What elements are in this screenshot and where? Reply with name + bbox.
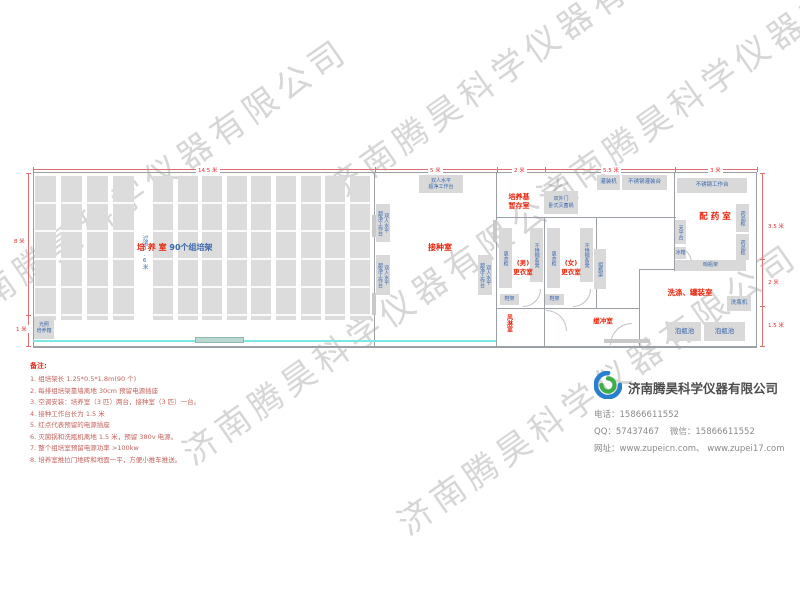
- soaking-pool-2: 泡瓶池: [704, 322, 745, 341]
- clean-bench-top: 双人水平 超净工作台: [419, 175, 463, 193]
- web-value: www.zupeicn.com、 www.zupei17.com: [620, 444, 785, 454]
- dim-tick: [545, 167, 546, 172]
- company-qq-line: QQ：57437467 微信：15866611552: [594, 425, 784, 437]
- culture-room-rack-count: 90个组培架: [169, 243, 212, 252]
- bottle-washer: 洗瓶机: [727, 296, 751, 311]
- medicine-cabinet-1: 药品柜: [736, 204, 749, 232]
- buffer-room-label: 缓冲室: [585, 316, 621, 326]
- phone-value: 15866611552: [620, 410, 680, 420]
- clean-bench-left-2: 双人水平 超净工作台: [376, 255, 390, 295]
- note-item: 1. 组培架长 1.25*0.5*1.8m(90 个): [30, 374, 330, 386]
- door-bar: [493, 220, 497, 242]
- sterilizer: 双外门 卧式灭菌锅: [544, 191, 578, 214]
- clean-bench-left-1: 双人水平 超净工作台: [376, 204, 390, 242]
- culture-rack: [251, 176, 271, 320]
- dim-tick: [26, 315, 31, 316]
- note-item: 5. 红点代表预留的电源插座: [30, 420, 330, 432]
- company-phone-line: 电话：15866611552: [594, 408, 784, 420]
- wall: [33, 172, 757, 173]
- door-arc: [610, 323, 632, 345]
- dim-label-top-3: 5.5 米: [601, 166, 621, 174]
- shoe-rack-women: 鞋架: [545, 294, 564, 305]
- company-logo-icon: [594, 371, 622, 403]
- medicine-cabinet-2: 药品柜: [736, 234, 749, 260]
- wall: [496, 217, 676, 218]
- dim-tick: [760, 259, 765, 260]
- air-shower-label: 风淋室: [503, 310, 514, 336]
- wall: [639, 269, 675, 270]
- dim-tick: [757, 167, 758, 172]
- notes-section: 备注: 1. 组培架长 1.25*0.5*1.8m(90 个)2. 每排组培架靠…: [30, 361, 330, 466]
- incubator: 光照 培养箱: [34, 317, 54, 339]
- dim-label-left-0: 8 米: [12, 237, 27, 245]
- clean-bench-right: 双人水平 超净工作台: [478, 255, 492, 295]
- dim-tick: [675, 167, 676, 172]
- dim-label-top-2: 2 米: [512, 166, 527, 174]
- dim-tick: [33, 167, 34, 172]
- qq-value: 57437467: [616, 427, 659, 437]
- dim-label-right-1: 2 米: [766, 278, 781, 286]
- note-item: 3. 空调安装：培养室（3 匹）两台，接种室（3 匹）一台。: [30, 397, 330, 409]
- shoe-rack-men: 鞋架: [500, 294, 519, 305]
- floorplan-canvas: 济南腾昊科学仪器有限公司济南腾昊科学仪器有限公司济南腾昊科学仪器有限公司济南腾昊…: [0, 0, 800, 600]
- dim-tick: [375, 167, 376, 172]
- wall: [756, 172, 757, 347]
- men-changing-label: (男) 更衣室: [508, 255, 538, 281]
- note-item: 7. 整个组培室预留电源功率 >100kw: [30, 443, 330, 455]
- company-name: 济南腾昊科学仪器有限公司: [628, 378, 778, 397]
- dim-label-right-0: 3.5 米: [766, 222, 786, 230]
- wechat-label: 微信：: [670, 427, 696, 437]
- culture-rack: [113, 176, 134, 320]
- culture-rack: [325, 176, 345, 320]
- dim-label-left-1: 1 米: [14, 325, 29, 333]
- dim-tick: [26, 173, 31, 174]
- door-arc: [546, 310, 567, 331]
- dim-tick: [760, 306, 765, 307]
- dim-line-left: [28, 173, 29, 347]
- web-label: 网址：: [594, 444, 620, 454]
- notes-list: 1. 组培架长 1.25*0.5*1.8m(90 个)2. 每排组培架靠墙离地 …: [30, 374, 330, 466]
- washing-room-label: 洗涤、罐装室: [660, 288, 720, 299]
- dim-tick: [760, 173, 765, 174]
- company-web-line: 网址：www.zupeicn.com、 www.zupei17.com: [594, 442, 784, 454]
- culture-rack: [61, 176, 82, 320]
- sliding-door-track: [33, 340, 496, 342]
- culture-rack: [35, 176, 56, 320]
- dim-label-top-0: 14.5 米: [196, 166, 220, 174]
- wall: [374, 172, 375, 347]
- note-item: 8. 培养室推拉门地砖和地面一平，方便小推车推送。: [30, 455, 330, 467]
- dim-tick: [497, 167, 498, 172]
- pharmacy-room-label: 配 药 室: [693, 211, 737, 224]
- note-item: 4. 接种工作台长为 1.5 米: [30, 409, 330, 421]
- dim-line-right: [762, 173, 763, 347]
- culture-rack: [227, 176, 247, 320]
- culture-rack: [301, 176, 321, 320]
- phone-label: 电话：: [594, 410, 620, 420]
- bottle-rack: 组瓶架: [594, 249, 606, 289]
- wechat-value: 15866611552: [695, 427, 755, 437]
- notes-title: 备注:: [30, 361, 330, 371]
- filling-table: 不锈钢灌装台: [622, 175, 667, 190]
- sliding-door: [195, 337, 244, 343]
- fridge: 冰箱: [675, 247, 686, 259]
- qq-label: QQ：: [594, 427, 616, 437]
- culture-rack: [276, 176, 296, 320]
- wall: [496, 172, 497, 347]
- door-arc: [523, 289, 541, 307]
- balance-table: 天平台: [675, 220, 686, 244]
- dim-line-top: [33, 169, 757, 170]
- wall: [33, 346, 757, 348]
- company-info: 济南腾昊科学仪器有限公司 电话：15866611552 QQ：57437467 …: [594, 371, 784, 454]
- medium-storage-label: 培养基 暂存室: [498, 190, 540, 214]
- filling-machine: 灌装机: [597, 175, 620, 190]
- culture-rack: [87, 176, 108, 320]
- dim-label-top-4: 3 米: [708, 166, 723, 174]
- drying-rack: 晾瓶架: [675, 260, 746, 271]
- inoculation-room-label: 接种室: [418, 242, 462, 254]
- note-item: 6. 灭菌锅和洗瓶机离地 1.5 米，预留 380v 电源。: [30, 432, 330, 444]
- dim-label-right-2: 1.5 米: [766, 321, 786, 329]
- women-changing-label: (女) 更衣室: [555, 255, 587, 281]
- dim-tick: [26, 346, 31, 347]
- door-bar: [372, 293, 376, 315]
- culture-rack: [350, 176, 370, 320]
- dim-label-top-1: 5 米: [428, 166, 443, 174]
- work-table: 不锈钢工作台: [677, 178, 747, 193]
- dim-tick: [760, 346, 765, 347]
- soaking-pool-1: 泡瓶池: [668, 322, 701, 341]
- door-arc: [573, 289, 591, 307]
- culture-room-name: 培 养 室: [137, 243, 167, 252]
- wall: [496, 308, 640, 309]
- culture-room-label: 培 养 室 90个组培架: [137, 242, 227, 253]
- wall: [544, 217, 545, 347]
- note-item: 2. 每排组培架靠墙离地 30cm 预留电源插座: [30, 386, 330, 398]
